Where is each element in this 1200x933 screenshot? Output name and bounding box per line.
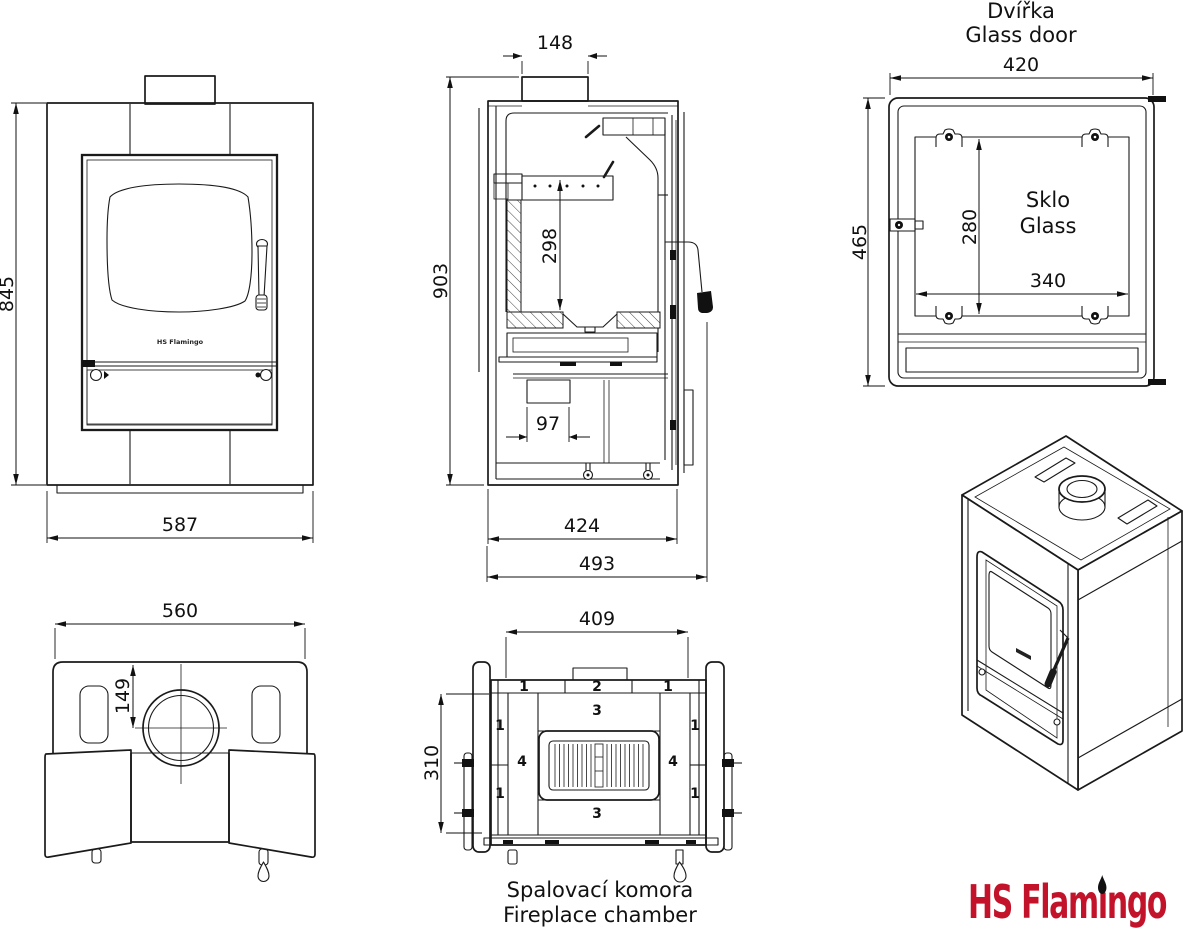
top-left-foot xyxy=(92,849,101,863)
svg-text:1: 1 xyxy=(690,718,700,734)
flame-drop-icon xyxy=(1098,875,1106,894)
top-right-vent xyxy=(252,686,280,743)
section-rear-lining xyxy=(507,200,521,312)
section-dim-flue-width: 148 xyxy=(503,32,607,74)
svg-text:340: 340 xyxy=(1030,270,1066,292)
door-dim-height: 465 xyxy=(849,98,885,386)
svg-text:420: 420 xyxy=(1003,54,1039,76)
svg-text:280: 280 xyxy=(959,209,981,245)
top-dim-width: 560 xyxy=(55,600,305,659)
glass-label-english: Glass xyxy=(1020,214,1077,238)
svg-text:587: 587 xyxy=(162,514,198,536)
glass-door-view: Dvířka Glass door Sklo Glass 420 46 xyxy=(849,0,1166,386)
chamber-caption-czech: Spalovací komora xyxy=(507,878,694,902)
chamber-left-foot xyxy=(508,850,517,864)
top-view: 560 149 xyxy=(45,600,315,882)
fireplace-chamber-view: 1 2 1 1 1 1 1 4 4 3 3 409 310 Spalovací … xyxy=(421,608,742,927)
glass-clip xyxy=(1082,306,1108,324)
logo-text-part2: ngo xyxy=(1107,875,1166,929)
front-dim-width: 587 xyxy=(47,491,313,543)
front-door-glass xyxy=(107,184,252,312)
door-brand-embossing: HS Flamingo xyxy=(157,338,204,346)
svg-text:2: 2 xyxy=(592,679,602,695)
section-pedestal xyxy=(527,380,570,403)
door-dim-glass-width: 340 xyxy=(916,270,1128,294)
door-bottom-panel xyxy=(906,348,1138,372)
section-dim-total-depth: 493 xyxy=(487,322,707,582)
technical-drawing-sheet: HS Flamingo 845 587 xyxy=(0,0,1200,933)
front-dim-height: 845 xyxy=(0,103,46,485)
svg-text:3: 3 xyxy=(592,806,602,822)
top-flue-opening xyxy=(135,664,227,784)
chamber-right-plate xyxy=(706,662,724,852)
svg-text:845: 845 xyxy=(0,276,18,312)
svg-text:1: 1 xyxy=(495,718,505,734)
iso-right-knob xyxy=(1054,719,1060,725)
section-view: 148 903 298 97 424 493 xyxy=(430,32,713,582)
front-left-knob xyxy=(91,370,102,381)
hs-flamingo-logo: HS Flamıngo xyxy=(968,879,1166,925)
svg-text:148: 148 xyxy=(537,32,573,54)
glass-clip xyxy=(936,306,962,324)
svg-text:4: 4 xyxy=(517,754,527,770)
section-dim-grate-width: 97 xyxy=(506,407,590,442)
chamber-grate xyxy=(539,731,659,800)
front-flue-collar xyxy=(145,76,215,104)
section-dim-body-depth: 424 xyxy=(488,489,677,544)
svg-text:1: 1 xyxy=(495,786,505,802)
svg-text:149: 149 xyxy=(112,678,134,714)
section-baffle xyxy=(522,176,613,200)
svg-text:409: 409 xyxy=(579,608,615,630)
door-outer-frame xyxy=(889,98,1154,386)
svg-text:493: 493 xyxy=(579,553,615,575)
glass-label-czech: Sklo xyxy=(1026,188,1070,212)
svg-text:903: 903 xyxy=(430,263,452,299)
top-left-vent xyxy=(80,686,108,743)
glass-clip xyxy=(936,129,962,147)
isometric-view xyxy=(962,436,1182,790)
front-base-plinth xyxy=(57,485,303,493)
logo-text-part1: HS Flam xyxy=(968,875,1098,929)
iso-left-knob xyxy=(979,669,985,675)
logo-letter-i: ı xyxy=(1098,879,1107,925)
section-grate-funnel xyxy=(563,314,617,327)
svg-text:560: 560 xyxy=(162,600,198,622)
top-left-door-leaf xyxy=(45,750,131,857)
svg-text:310: 310 xyxy=(421,745,443,781)
door-hinge xyxy=(890,219,923,231)
door-dim-glass-height: 280 xyxy=(959,139,981,314)
svg-text:97: 97 xyxy=(536,413,560,435)
section-ash-pan xyxy=(507,333,657,357)
front-door: HS Flamingo xyxy=(82,155,277,430)
top-dim-flue-offset: 149 xyxy=(112,665,134,728)
door-title-czech: Dvířka xyxy=(987,0,1055,23)
svg-text:4: 4 xyxy=(668,754,678,770)
section-flue-stub xyxy=(522,77,588,101)
svg-text:298: 298 xyxy=(539,228,561,264)
door-title-english: Glass door xyxy=(965,23,1077,47)
svg-text:3: 3 xyxy=(592,703,602,719)
svg-text:1: 1 xyxy=(663,679,673,695)
door-dim-width: 420 xyxy=(890,54,1153,95)
chamber-left-plate xyxy=(473,662,490,852)
svg-text:1: 1 xyxy=(519,679,529,695)
svg-text:1: 1 xyxy=(690,786,700,802)
svg-text:465: 465 xyxy=(849,224,871,260)
front-view: HS Flamingo 845 587 xyxy=(0,76,313,543)
top-right-door-leaf xyxy=(229,750,315,857)
glass-clip xyxy=(1082,129,1108,147)
front-right-knob xyxy=(261,370,272,381)
chamber-caption-english: Fireplace chamber xyxy=(503,903,697,927)
drawing-canvas: HS Flamingo 845 587 xyxy=(0,0,1200,933)
svg-text:424: 424 xyxy=(564,515,600,537)
